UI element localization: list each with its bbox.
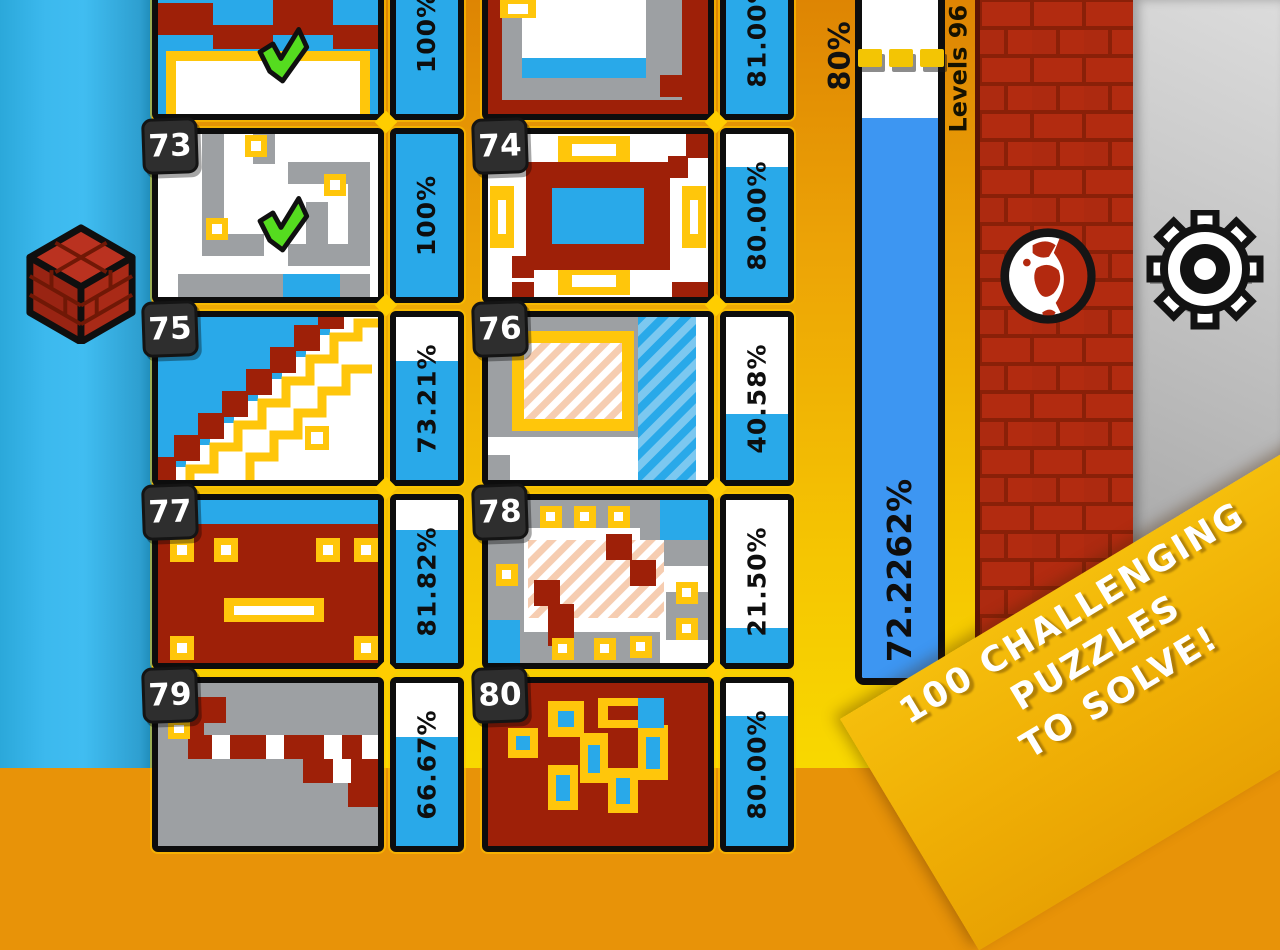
- level-number-badge: 74: [471, 117, 529, 175]
- level-percent-bar: 66.67%: [390, 677, 464, 852]
- level-number-badge: 73: [141, 117, 199, 175]
- level-number-badge: 78: [471, 483, 529, 541]
- level-percent-label: 80.00%: [743, 709, 772, 819]
- level-tile[interactable]: 21.50% 78: [482, 494, 794, 669]
- level-percent-label: 73.21%: [413, 343, 442, 453]
- left-background-panel: [0, 0, 152, 768]
- level-percent-bar: 73.21%: [390, 311, 464, 486]
- level-tile[interactable]: 80.00% 74: [482, 128, 794, 303]
- level-tile[interactable]: 100%: [152, 0, 464, 120]
- level-number-badge: 79: [141, 666, 199, 724]
- level-tile[interactable]: 80.00% 80: [482, 677, 794, 852]
- level-number-badge: 80: [471, 666, 529, 724]
- globe-button[interactable]: [998, 226, 1098, 330]
- level-percent-bar: 80.00%: [720, 128, 794, 303]
- level-tile[interactable]: 81.82% 77: [152, 494, 464, 669]
- level-percent-label: 66.67%: [413, 709, 442, 819]
- level-number-badge: 75: [141, 300, 199, 358]
- level-tile[interactable]: 81.00%: [482, 0, 794, 120]
- level-percent-label: 100%: [413, 0, 442, 73]
- overall-progress-fill: 72.2262%: [862, 118, 938, 678]
- checkmark-icon: [252, 23, 310, 87]
- level-tile[interactable]: 73.21% 75: [152, 311, 464, 486]
- level-percent-label: 80.00%: [743, 160, 772, 270]
- level-number-badge: 77: [141, 483, 199, 541]
- level-percent-bar: 40.58%: [720, 311, 794, 486]
- level-percent-label: 81.00%: [743, 0, 772, 88]
- level-percent-bar: 80.00%: [720, 677, 794, 852]
- overall-progress-label: 72.2262%: [881, 479, 920, 662]
- level-percent-bar: 100%: [390, 0, 464, 120]
- level-72-thumbnail: [482, 0, 714, 120]
- level-tile[interactable]: 100% 73: [152, 128, 464, 303]
- level-percent-bar: 81.00%: [720, 0, 794, 120]
- level-percent-label: 40.58%: [743, 343, 772, 453]
- level-percent-label: 100%: [413, 175, 442, 256]
- threshold-dashed-line: [858, 49, 944, 67]
- levels-range-label: Levels 96 - 9: [941, 0, 977, 152]
- level-tile[interactable]: 40.58% 76: [482, 311, 794, 486]
- overall-progress-bar: 72.2262%: [855, 0, 945, 685]
- level-tile[interactable]: 66.67% 79: [152, 677, 464, 852]
- checkmark-icon: [252, 192, 310, 256]
- level-number-badge: 76: [471, 300, 529, 358]
- level-percent-bar: 100%: [390, 128, 464, 303]
- brick-cube-icon: [22, 222, 140, 344]
- level-percent-label: 81.82%: [413, 526, 442, 636]
- level-percent-bar: 21.50%: [720, 494, 794, 669]
- gear-settings-button[interactable]: [1146, 210, 1264, 338]
- level-percent-bar: 81.82%: [390, 494, 464, 669]
- threshold-label: 80%: [820, 18, 860, 94]
- level-percent-label: 21.50%: [743, 526, 772, 636]
